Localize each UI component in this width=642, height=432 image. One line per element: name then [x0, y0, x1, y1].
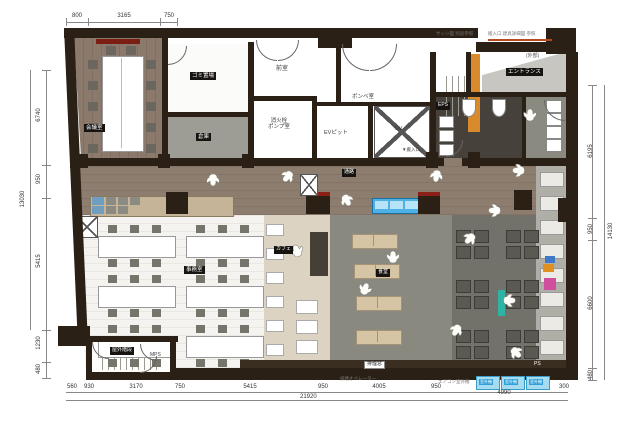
fire-pump-line2: ポンプ室	[268, 124, 290, 130]
meeting-table-line	[121, 58, 122, 148]
column-red-cap	[418, 192, 440, 196]
meeting-chair	[146, 60, 156, 69]
wall-v-evpit-ev	[368, 104, 373, 158]
sink	[439, 116, 454, 128]
shelf-box	[266, 344, 284, 356]
ev-pit-label: EVピット	[324, 130, 348, 136]
note-red-line	[488, 39, 552, 41]
lounge-table-line	[377, 297, 378, 308]
wall-h-garbage-storage	[162, 112, 254, 117]
wall-pier	[158, 154, 170, 168]
person-icon	[482, 203, 503, 219]
counter-unit	[540, 316, 564, 331]
office-chair	[240, 309, 249, 317]
ac-outdoor-unit: 室外機	[526, 376, 550, 390]
wall-v-garbage-anteroom	[248, 42, 254, 160]
dim-left-1: 950	[36, 164, 42, 194]
office-chair	[152, 259, 161, 267]
dim-tick	[160, 18, 161, 26]
door-arc	[256, 40, 277, 61]
office-chair	[130, 325, 139, 333]
kitchen-stool	[474, 246, 489, 259]
kitchen-stool	[506, 280, 521, 293]
wall-top	[64, 28, 478, 38]
meeting-chair	[88, 102, 98, 111]
office-chair	[152, 325, 161, 333]
lounge-table	[356, 330, 402, 345]
shelf-box	[266, 272, 284, 284]
mps-label: MPS	[150, 353, 161, 359]
exterior-label: (外部)	[526, 54, 539, 60]
office-chair	[130, 359, 139, 367]
kitchenette-appliance	[92, 197, 104, 205]
ac-outdoor-unit: 室外機	[476, 376, 500, 390]
dim-tick	[42, 198, 51, 199]
lounge-table-line	[373, 235, 374, 246]
office-chair	[196, 275, 205, 283]
office-chair	[108, 325, 117, 333]
office-chair	[218, 359, 227, 367]
desk	[186, 336, 264, 358]
kitchen-stool	[456, 280, 471, 293]
blue-counter-chip	[390, 201, 403, 209]
office-chair	[108, 225, 117, 233]
meeting-chair	[106, 46, 116, 55]
dim-right-2: 6600	[588, 288, 594, 318]
office-chair	[130, 259, 139, 267]
shelf-box	[266, 224, 284, 236]
dim-tick	[66, 18, 67, 26]
garbage-room-label: ゴミ置場	[190, 72, 216, 80]
dim-right-0: 6195	[588, 136, 594, 166]
door-arc	[342, 44, 369, 71]
desk	[98, 286, 176, 308]
ps-label: PS	[534, 362, 541, 368]
counter-unit	[540, 172, 564, 187]
meeting-chair	[88, 144, 98, 153]
wall-h-cylinder-ev	[312, 102, 436, 106]
office-chair	[218, 225, 227, 233]
shelf-box	[296, 340, 318, 354]
storage-room-label: 倉庫	[196, 133, 211, 141]
office-label: 事務室	[184, 266, 205, 274]
office-chair	[218, 275, 227, 283]
meeting-room-label: 会議室	[84, 124, 105, 132]
wall-corner-ne	[546, 28, 576, 54]
shelf-box	[266, 296, 284, 308]
office-chair	[152, 309, 161, 317]
kitchen-stool	[456, 346, 471, 359]
meeting-chair	[126, 46, 136, 55]
service-box-magenta	[544, 278, 556, 290]
cylinder-room-label: ボンベ室	[352, 94, 374, 100]
kitchen-stool	[524, 246, 539, 259]
smoke-operator-label: 排煙オペレーター	[340, 376, 376, 381]
meeting-red-strip	[96, 39, 140, 44]
office-chair	[240, 325, 249, 333]
dim-left-total: 13030	[20, 184, 26, 214]
corridor-label: 通路	[342, 169, 356, 177]
meeting-chair	[146, 102, 156, 111]
dim-top-2: 750	[157, 13, 181, 19]
desk	[186, 236, 264, 258]
dim-left-2: 5415	[36, 246, 42, 276]
kitchen-stool	[474, 296, 489, 309]
dim-line-bottom-total	[66, 400, 568, 401]
door-arc	[278, 40, 299, 61]
dim-bottom-total: 21920	[298, 394, 319, 400]
office-chair	[152, 225, 161, 233]
office-chair	[196, 225, 205, 233]
dining-label: 食堂	[376, 269, 390, 277]
kitchenette-box	[130, 197, 140, 205]
ac-units-label: エアコン室外機	[438, 379, 470, 384]
desk	[186, 286, 264, 308]
delivery-label: ▼搬入口	[402, 147, 420, 152]
wall-pier	[558, 198, 578, 222]
shaft-xbox	[300, 174, 318, 196]
meeting-table	[102, 56, 144, 152]
kitchen-stool	[524, 296, 539, 309]
kitchen-stool	[506, 230, 521, 243]
wall-left	[64, 28, 88, 344]
kitchen-stool	[506, 330, 521, 343]
wall-pier	[70, 154, 88, 168]
dim-left-4: 480	[36, 354, 42, 384]
dim-bottom-1: 930	[77, 384, 101, 390]
column	[514, 190, 532, 210]
desk	[98, 236, 176, 258]
dim-bottom-3: 750	[168, 384, 192, 390]
kitchen-stool	[524, 330, 539, 343]
office-chair	[240, 275, 249, 283]
kitchen-stool	[474, 280, 489, 293]
dim-left-0: 6740	[36, 100, 42, 130]
office-chair	[240, 259, 249, 267]
counter-unit	[540, 340, 564, 355]
office-chair	[108, 275, 117, 283]
smoke-window-label: 排煙窓	[364, 361, 385, 369]
dim-top-1: 3165	[112, 13, 136, 19]
meeting-chair	[88, 60, 98, 69]
blue-counter-chip	[405, 201, 418, 209]
wall-pier	[468, 152, 480, 168]
kitchenette-box	[106, 197, 116, 205]
kitchenette-appliance	[92, 206, 104, 214]
kitchen-stool	[456, 296, 471, 309]
kitchenette-box	[118, 206, 128, 214]
vanity-unit	[546, 126, 562, 139]
kitchen-stool	[506, 246, 521, 259]
dim-line-left-total	[30, 70, 31, 330]
anteroom-label: 前室	[276, 66, 288, 73]
office-chair	[130, 309, 139, 317]
meeting-chair	[146, 81, 156, 90]
office-chair	[218, 325, 227, 333]
office-chair	[130, 225, 139, 233]
kitchenette-box	[118, 197, 128, 205]
wall-v-anteroom-right	[336, 42, 341, 102]
office-chair	[108, 309, 117, 317]
office-chair	[108, 259, 117, 267]
person-icon	[506, 163, 527, 179]
kitchen-stool	[474, 330, 489, 343]
person-icon	[502, 293, 523, 309]
column	[166, 192, 188, 214]
dim-tick	[177, 18, 178, 26]
floor-plan-canvas: 会議室 ゴミ置場 倉庫 前室 ボンベ室 消火栓 ポンプ室 EVピット EV エン…	[0, 0, 642, 432]
toilet-fixture	[462, 99, 476, 117]
entrance-label: エントランス	[506, 68, 543, 76]
office-chair	[218, 259, 227, 267]
shelf-box	[266, 320, 284, 332]
dim-line-right-total	[604, 85, 605, 380]
door-arc	[370, 44, 397, 71]
meeting-chair	[88, 81, 98, 90]
dim-right-total: 14130	[608, 216, 614, 246]
person-icon	[205, 172, 221, 193]
dim-bottom-2: 3170	[124, 384, 148, 390]
counter-unit	[540, 292, 564, 307]
wall-v-vestibule-right	[466, 52, 471, 96]
counter-unit	[540, 220, 564, 235]
lounge-table	[356, 296, 402, 311]
office-chair	[130, 275, 139, 283]
ac-unit-chip: 室外機	[479, 379, 493, 385]
dim-tick	[42, 70, 51, 71]
office-chair	[218, 309, 227, 317]
office-chair	[196, 359, 205, 367]
dim-tick	[42, 165, 51, 166]
cafe-cabinet	[310, 232, 328, 276]
dim-line-left	[46, 70, 47, 378]
outdoor-stairs-label: 屋外階段	[110, 347, 134, 355]
eps-label: EPS	[436, 102, 450, 110]
office-chair	[108, 359, 117, 367]
vanity-unit	[546, 139, 562, 152]
person-icon	[522, 102, 538, 123]
shelf-box	[296, 300, 318, 314]
dim-right-1: 950	[588, 214, 594, 244]
kitchen-stool	[474, 346, 489, 359]
dim-tick	[588, 85, 597, 86]
stair-wall	[170, 336, 176, 378]
person-icon	[385, 244, 401, 265]
dim-bottom-7: 950	[424, 384, 448, 390]
meeting-chair	[146, 144, 156, 153]
kitchenette-box	[106, 206, 116, 214]
sash-note-1: サッシ図 別途参照	[436, 31, 473, 36]
dim-line-top	[66, 22, 178, 23]
wall-h-anteroom-pump	[248, 96, 314, 101]
dim-bottom-5: 950	[311, 384, 335, 390]
dim-tick	[42, 330, 51, 331]
office-chair	[196, 309, 205, 317]
ev-label: EV	[395, 126, 402, 132]
shelf-box	[296, 320, 318, 334]
ac-unit-chip: 室外機	[529, 379, 543, 385]
door-gap	[444, 158, 462, 166]
wall-pier	[242, 154, 254, 168]
dim-tick	[88, 18, 89, 26]
kitchen-stool	[524, 280, 539, 293]
wall-pier	[426, 152, 438, 168]
dim-bottom-8: 4990	[492, 390, 516, 396]
sash-note-2: 搬入口 建具詳細図 参照	[488, 31, 536, 36]
office-chair	[240, 225, 249, 233]
wall-h-toilet-top	[436, 92, 566, 97]
service-box-orange	[543, 264, 554, 272]
office-chair	[152, 275, 161, 283]
dim-tick	[42, 362, 51, 363]
service-box-blue	[545, 256, 555, 263]
toilet-fixture	[492, 99, 506, 117]
wall-mid	[72, 158, 566, 166]
fire-pump-room-label: 消火栓 ポンプ室	[268, 118, 290, 131]
dim-bottom-6: 4005	[367, 384, 391, 390]
dim-top-0: 800	[65, 13, 89, 19]
office-chair	[196, 325, 205, 333]
dim-bottom-9: 300	[552, 384, 576, 390]
lounge-table-line	[377, 331, 378, 342]
blue-counter-chip	[375, 201, 388, 209]
cafe-label: カフェ	[274, 246, 293, 254]
ac-unit-chip: 室外機	[504, 379, 518, 385]
ac-outdoor-unit: 室外機	[501, 376, 525, 390]
dim-tick	[42, 378, 51, 379]
stair-wall	[86, 372, 178, 380]
kitchen-stool	[524, 230, 539, 243]
dim-bottom-4: 5415	[238, 384, 262, 390]
dim-right-3: 480	[588, 360, 594, 390]
meeting-chair	[146, 123, 156, 132]
